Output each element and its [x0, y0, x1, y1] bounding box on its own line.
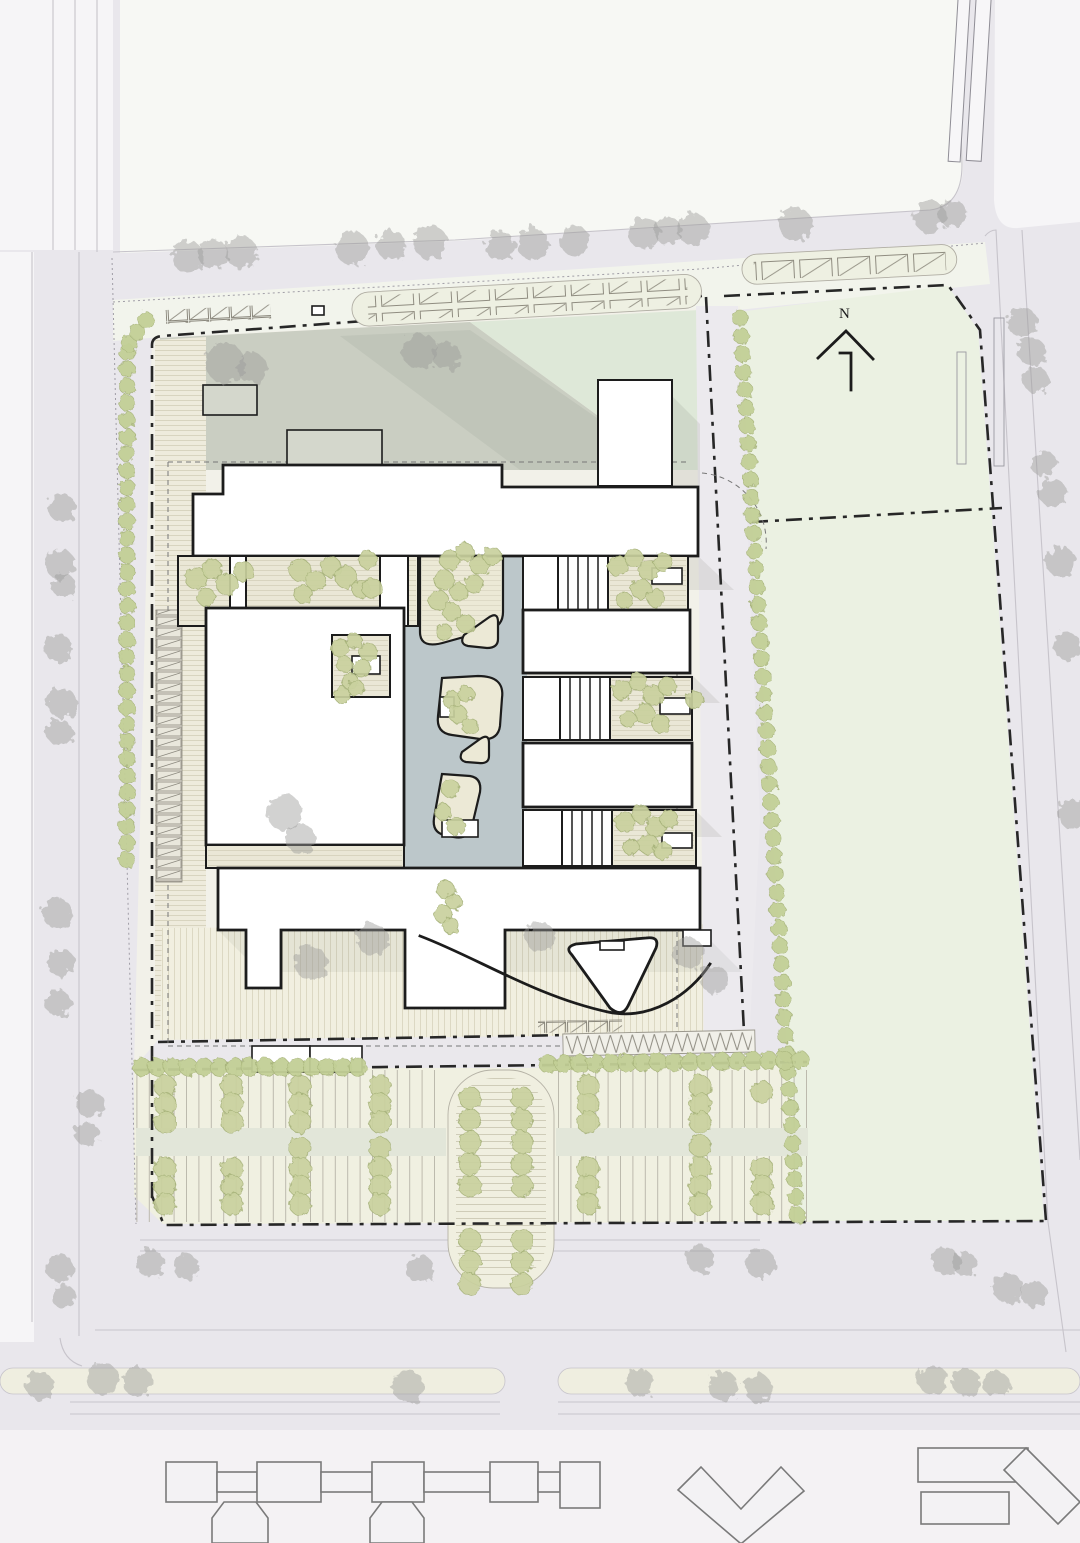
gate-kiosk — [312, 306, 324, 315]
site-plan-drawing: N — [0, 0, 1080, 1543]
site-plan-canvas: N — [0, 0, 1080, 1543]
city-block-northeast — [994, 0, 1080, 228]
parking-aisle-east — [556, 1128, 808, 1156]
pavilion-skylight — [600, 941, 624, 950]
utility-shed-small — [203, 385, 257, 415]
utility-shed-large — [287, 430, 382, 468]
city-block-northwest — [0, 0, 113, 250]
wing-b — [523, 743, 692, 807]
bike-rack-strip — [563, 1030, 755, 1056]
north-label: N — [839, 306, 851, 322]
tower-block — [598, 380, 672, 486]
stall-row-south — [538, 1020, 622, 1033]
city-block-north — [120, 0, 963, 253]
stair-core-2 — [562, 810, 612, 866]
wing-link-2 — [523, 810, 562, 866]
west-margin — [0, 252, 34, 1342]
wing-link-1 — [523, 677, 560, 740]
stair-core-1 — [560, 677, 610, 740]
stair-core-0 — [558, 556, 608, 610]
boulevard-median-west — [0, 1368, 505, 1394]
wing-a — [523, 610, 690, 673]
wing-link-0 — [523, 556, 558, 610]
